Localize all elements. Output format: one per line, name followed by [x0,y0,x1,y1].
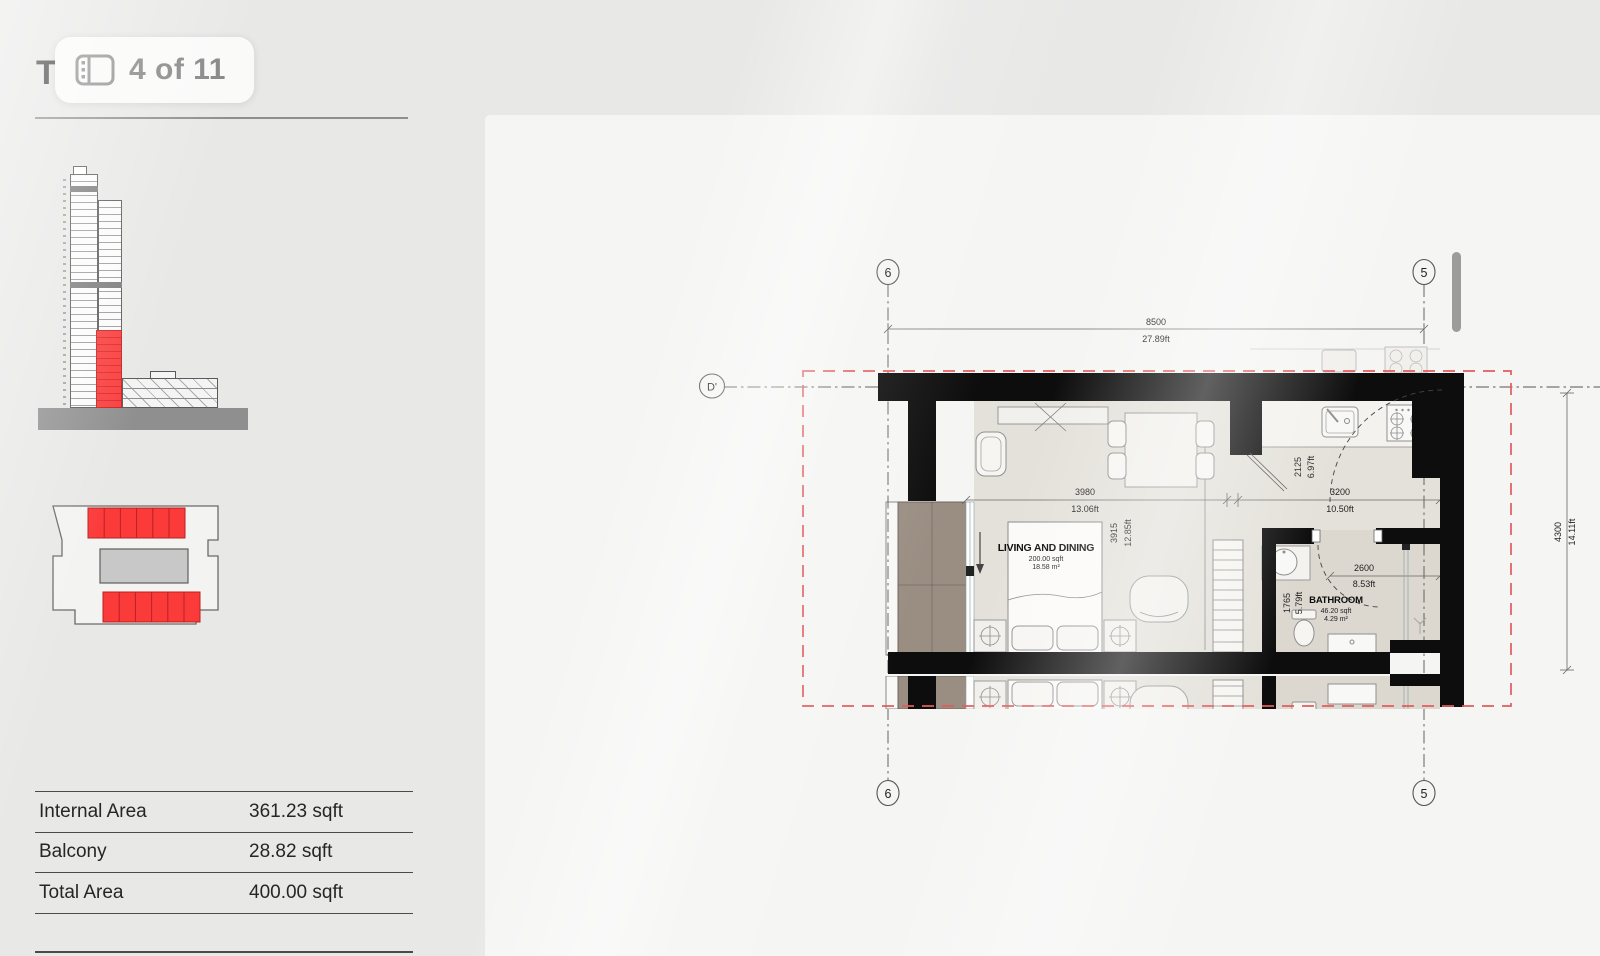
area-label: Total Area [35,882,124,904]
dining-chair [1108,421,1126,447]
svg-text:6.97ft: 6.97ft [1306,455,1316,478]
svg-text:3980: 3980 [1075,487,1095,497]
dining-table [1125,413,1197,487]
lounge-chair [1130,576,1188,622]
pagination-label: 4 of 11 [129,53,226,87]
tower-cap [73,166,87,175]
svg-text:4300: 4300 [1553,522,1563,542]
armchair [976,432,1006,476]
svg-text:2600: 2600 [1354,563,1374,573]
svg-text:14.11ft: 14.11ft [1567,518,1577,545]
pillow [1057,626,1098,650]
area-value: 28.82 sqft [249,841,332,863]
grid-bubble-5-top: 5 [1421,266,1428,280]
floor-plate-diagram [40,490,240,630]
svg-text:18.58 m²: 18.58 m² [1032,564,1060,571]
svg-text:13.06ft: 13.06ft [1071,504,1099,514]
svg-text:3915: 3915 [1109,523,1119,543]
grid-bubble-6-top: 6 [885,266,892,280]
sidebar-divider [35,117,408,119]
area-value: 361.23 sqft [249,801,343,823]
svg-text:27.89ft: 27.89ft [1142,334,1170,344]
pagination-badge[interactable]: 4 of 11 [55,37,254,103]
gallery-icon [75,54,115,86]
table-row-total-area: Total Area 400.00 sqft [35,872,413,914]
svg-text:1765: 1765 [1282,593,1292,613]
page-title-partial: T [36,54,57,93]
svg-text:2125: 2125 [1293,457,1303,477]
ground-bar [38,408,248,430]
plate-units-top [88,508,185,538]
area-table: Internal Area 361.23 sqft Balcony 28.82 … [35,791,413,914]
svg-text:4.29 m²: 4.29 m² [1324,616,1348,623]
room-label-living: LIVING AND DINING [998,542,1095,554]
plate-core [100,549,188,583]
grid-bubble-d: D' [707,382,717,394]
area-value: 400.00 sqft [249,882,343,904]
highlighted-floors [96,330,122,408]
area-label: Balcony [35,841,107,863]
grid-bubble-5-bottom: 5 [1421,787,1428,801]
dining-chair [1196,453,1214,479]
door-post [1374,530,1382,542]
svg-text:10.50ft: 10.50ft [1326,504,1354,514]
room-label-bathroom: BATHROOM [1309,595,1363,606]
floor-ticks [63,174,66,408]
svg-text:8.53ft: 8.53ft [1353,579,1376,589]
mech-band-top [70,186,98,192]
svg-text:3200: 3200 [1330,487,1350,497]
toilet-bowl [1294,620,1314,646]
plate-units-bottom [103,592,200,622]
pillow [1012,626,1053,650]
floorplan-drawing: LIVING AND DINING 200.00 sqft 18.58 m² B… [485,115,1600,956]
svg-text:5.79ft: 5.79ft [1294,591,1304,614]
table-row-internal-area: Internal Area 361.23 sqft [35,791,413,832]
podium [122,378,218,408]
neighbor-unit-below [886,676,1440,726]
tower-left [70,174,98,408]
shelf-ladder [1213,540,1243,652]
svg-text:12.85ft: 12.85ft [1123,519,1133,547]
dining-chair [1196,421,1214,447]
table-row-balcony: Balcony 28.82 sqft [35,832,413,873]
dining-chair [1108,453,1126,479]
scrollbar-thumb[interactable] [1452,252,1461,332]
svg-text:8500: 8500 [1146,317,1166,327]
svg-text:200.00 sqft: 200.00 sqft [1029,556,1064,563]
svg-text:46.20 sqft: 46.20 sqft [1321,608,1352,615]
area-label: Internal Area [35,801,147,823]
mech-band-mid [70,282,122,288]
tv-console [998,407,1108,424]
door-post [1312,530,1320,542]
bottom-divider [35,951,413,953]
grid-bubble-6-bottom: 6 [885,787,892,801]
building-elevation-diagram [30,160,250,432]
